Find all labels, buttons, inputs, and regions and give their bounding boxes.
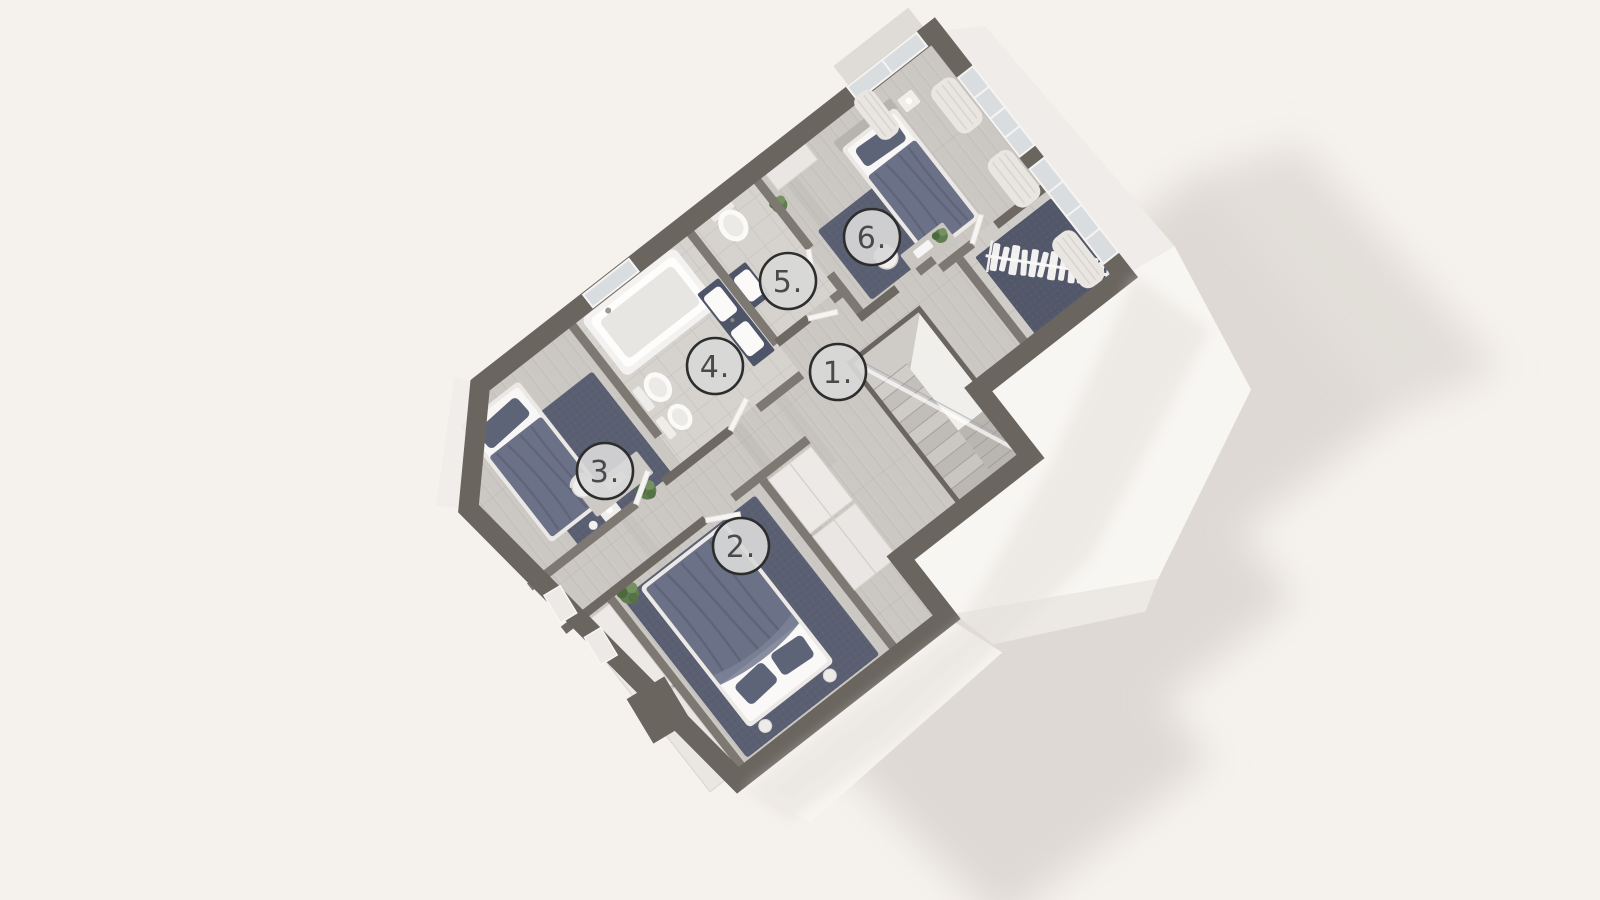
room-marker-5: 5.	[760, 253, 816, 309]
marker-5-label: 5.	[773, 265, 804, 300]
room-marker-2: 2.	[713, 518, 769, 574]
marker-1-label: 1.	[823, 356, 854, 391]
marker-3-label: 3.	[590, 455, 621, 490]
marker-4-label: 4.	[700, 350, 731, 385]
room-marker-1: 1.	[810, 344, 866, 400]
marker-2-label: 2.	[726, 530, 757, 565]
floor-plan-render: 1. 2. 3. 4. 5. 6.	[0, 0, 1600, 900]
floor-plan-screenshot: 1. 2. 3. 4. 5. 6.	[0, 0, 1600, 900]
room-marker-4: 4.	[687, 338, 743, 394]
marker-6-label: 6.	[857, 221, 888, 256]
room-marker-6: 6.	[844, 209, 900, 265]
room-marker-3: 3.	[577, 443, 633, 499]
